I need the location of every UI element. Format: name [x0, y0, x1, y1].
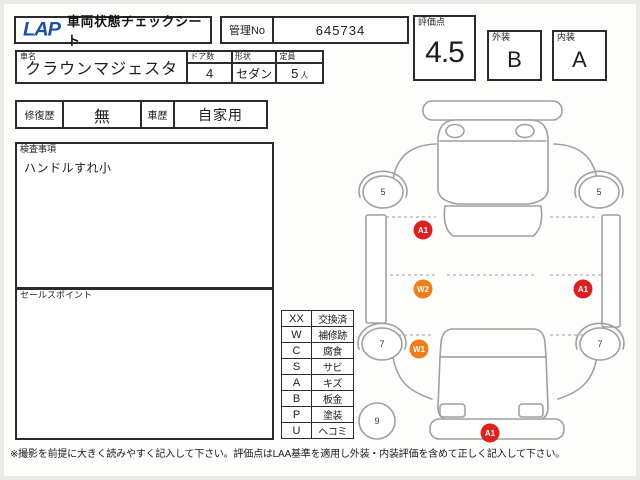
right-taillight	[519, 404, 543, 417]
damage-marker-a1-front-left: A1	[414, 221, 433, 240]
exterior-grade-box: 外装 B	[487, 30, 542, 81]
damage-marker-label: W1	[413, 345, 426, 354]
body-shape-value: セダン	[233, 64, 276, 82]
interior-grade-value: A	[554, 32, 605, 79]
damage-marker-label: A1	[485, 429, 496, 438]
inspection-notes-content: ハンドルすれ小	[24, 159, 112, 176]
legend-row: Aキズ	[282, 375, 354, 391]
legend-meaning: サビ	[312, 359, 354, 375]
rear-left-tire-depth: 7	[379, 339, 384, 349]
front-left-fender	[393, 144, 436, 179]
left-side-panel	[366, 215, 386, 323]
legend-meaning: キズ	[312, 375, 354, 391]
left-headlight	[446, 125, 464, 138]
legend-row: XX交換済	[282, 311, 354, 327]
front-left-tire-depth: 5	[380, 187, 385, 197]
front-right-fender	[554, 144, 597, 179]
legend-meaning: 板金	[312, 391, 354, 407]
damage-marker-w2-left-door: W2	[414, 280, 433, 299]
legend-row: B板金	[282, 391, 354, 407]
legend-row: Sサビ	[282, 359, 354, 375]
car-damage-diagram: 5 5 7 7 9 A1 W2 A1 W1 A1	[352, 87, 639, 449]
doors-column: ドア数 4	[188, 52, 233, 82]
vehicle-spec-table: 車名 クラウンマジェスタ ドア数 4 形状 セダン 定員 5 人	[15, 50, 324, 84]
lap-logo: LAP	[23, 19, 60, 41]
legend-code: S	[282, 359, 312, 375]
doors-label: ドア数	[188, 52, 231, 64]
legend-row: P塗装	[282, 407, 354, 423]
inspection-notes-box: 検査事項 ハンドルすれ小	[15, 142, 274, 289]
overall-score-box: 評価点 4.5	[413, 15, 476, 81]
right-headlight	[516, 125, 534, 138]
car-usage-label: 車歴	[142, 102, 175, 127]
left-taillight	[440, 404, 465, 417]
car-usage-value: 自家用	[175, 102, 266, 127]
interior-grade-box: 内装 A	[552, 30, 607, 81]
legend-meaning: 腐食	[312, 343, 354, 359]
overall-score-value: 4.5	[415, 17, 474, 79]
damage-marker-label: A1	[418, 226, 429, 235]
legend-row: C腐食	[282, 343, 354, 359]
rear-right-fender	[558, 357, 597, 399]
exterior-grade-value: B	[489, 32, 540, 79]
doors-value: 4	[188, 64, 231, 82]
sheet-title: 車両状態チェックシート	[67, 11, 210, 49]
inspection-notes-label: 検査事項	[20, 145, 56, 155]
legend-meaning: ヘコミ	[312, 423, 354, 439]
damage-marker-label: A1	[578, 285, 589, 294]
check-sheet: LAP 車両状態チェックシート 管理No 645734 評価点 4.5 外装 B…	[4, 4, 636, 476]
damage-marker-w1-rear-left: W1	[410, 340, 429, 359]
damage-marker-label: W2	[417, 285, 430, 294]
management-number-value: 645734	[274, 18, 407, 42]
legend-meaning: 補修跡	[312, 327, 354, 343]
capacity-value-cell: 5 人	[277, 64, 322, 82]
damage-marker-a1-rear-bumper: A1	[481, 424, 500, 443]
capacity-column: 定員 5 人	[277, 52, 322, 82]
rear-right-tire-depth: 7	[597, 339, 602, 349]
rear-window	[440, 329, 546, 357]
footer-note: ※撮影を前提に大きく読みやすく記入して下さい。評価点はLAA基準を適用し外装・内…	[10, 445, 640, 460]
repair-history-label: 修復歴	[17, 102, 64, 127]
legend-row: W補修跡	[282, 327, 354, 343]
vehicle-name-value: クラウンマジェスタ	[17, 52, 186, 82]
body-shape-column: 形状 セダン	[233, 52, 278, 82]
body-shape-label: 形状	[233, 52, 276, 64]
capacity-label: 定員	[277, 52, 322, 64]
sales-points-box: セールスポイント	[15, 288, 274, 440]
front-bumper	[423, 101, 562, 120]
sales-points-label: セールスポイント	[20, 291, 92, 301]
front-right-tire-depth: 5	[596, 187, 601, 197]
legend-code: XX	[282, 311, 312, 327]
sheet-header: LAP 車両状態チェックシート	[14, 16, 212, 44]
rear-left-fender	[393, 357, 432, 399]
right-side-panel	[602, 215, 620, 327]
legend-code: B	[282, 391, 312, 407]
damage-marker-a1-right-door: A1	[574, 280, 593, 299]
capacity-unit: 人	[300, 70, 308, 82]
repair-history-value: 無	[64, 102, 142, 127]
history-table: 修復歴 無 車歴 自家用	[15, 100, 268, 129]
capacity-value: 5	[291, 66, 298, 81]
damage-code-legend: XX交換済 W補修跡 C腐食 Sサビ Aキズ B板金 P塗装 Uヘコミ	[281, 310, 354, 439]
vehicle-name-cell: 車名 クラウンマジェスタ	[17, 52, 188, 82]
legend-code: A	[282, 375, 312, 391]
legend-row: Uヘコミ	[282, 423, 354, 439]
legend-code: W	[282, 327, 312, 343]
windshield	[444, 206, 541, 236]
spare-tire-depth: 9	[374, 416, 379, 426]
legend-code: C	[282, 343, 312, 359]
legend-code: U	[282, 423, 312, 439]
legend-meaning: 交換済	[312, 311, 354, 327]
legend-meaning: 塗装	[312, 407, 354, 423]
management-number-label: 管理No	[222, 18, 274, 42]
management-number-box: 管理No 645734	[220, 16, 409, 44]
legend-code: P	[282, 407, 312, 423]
